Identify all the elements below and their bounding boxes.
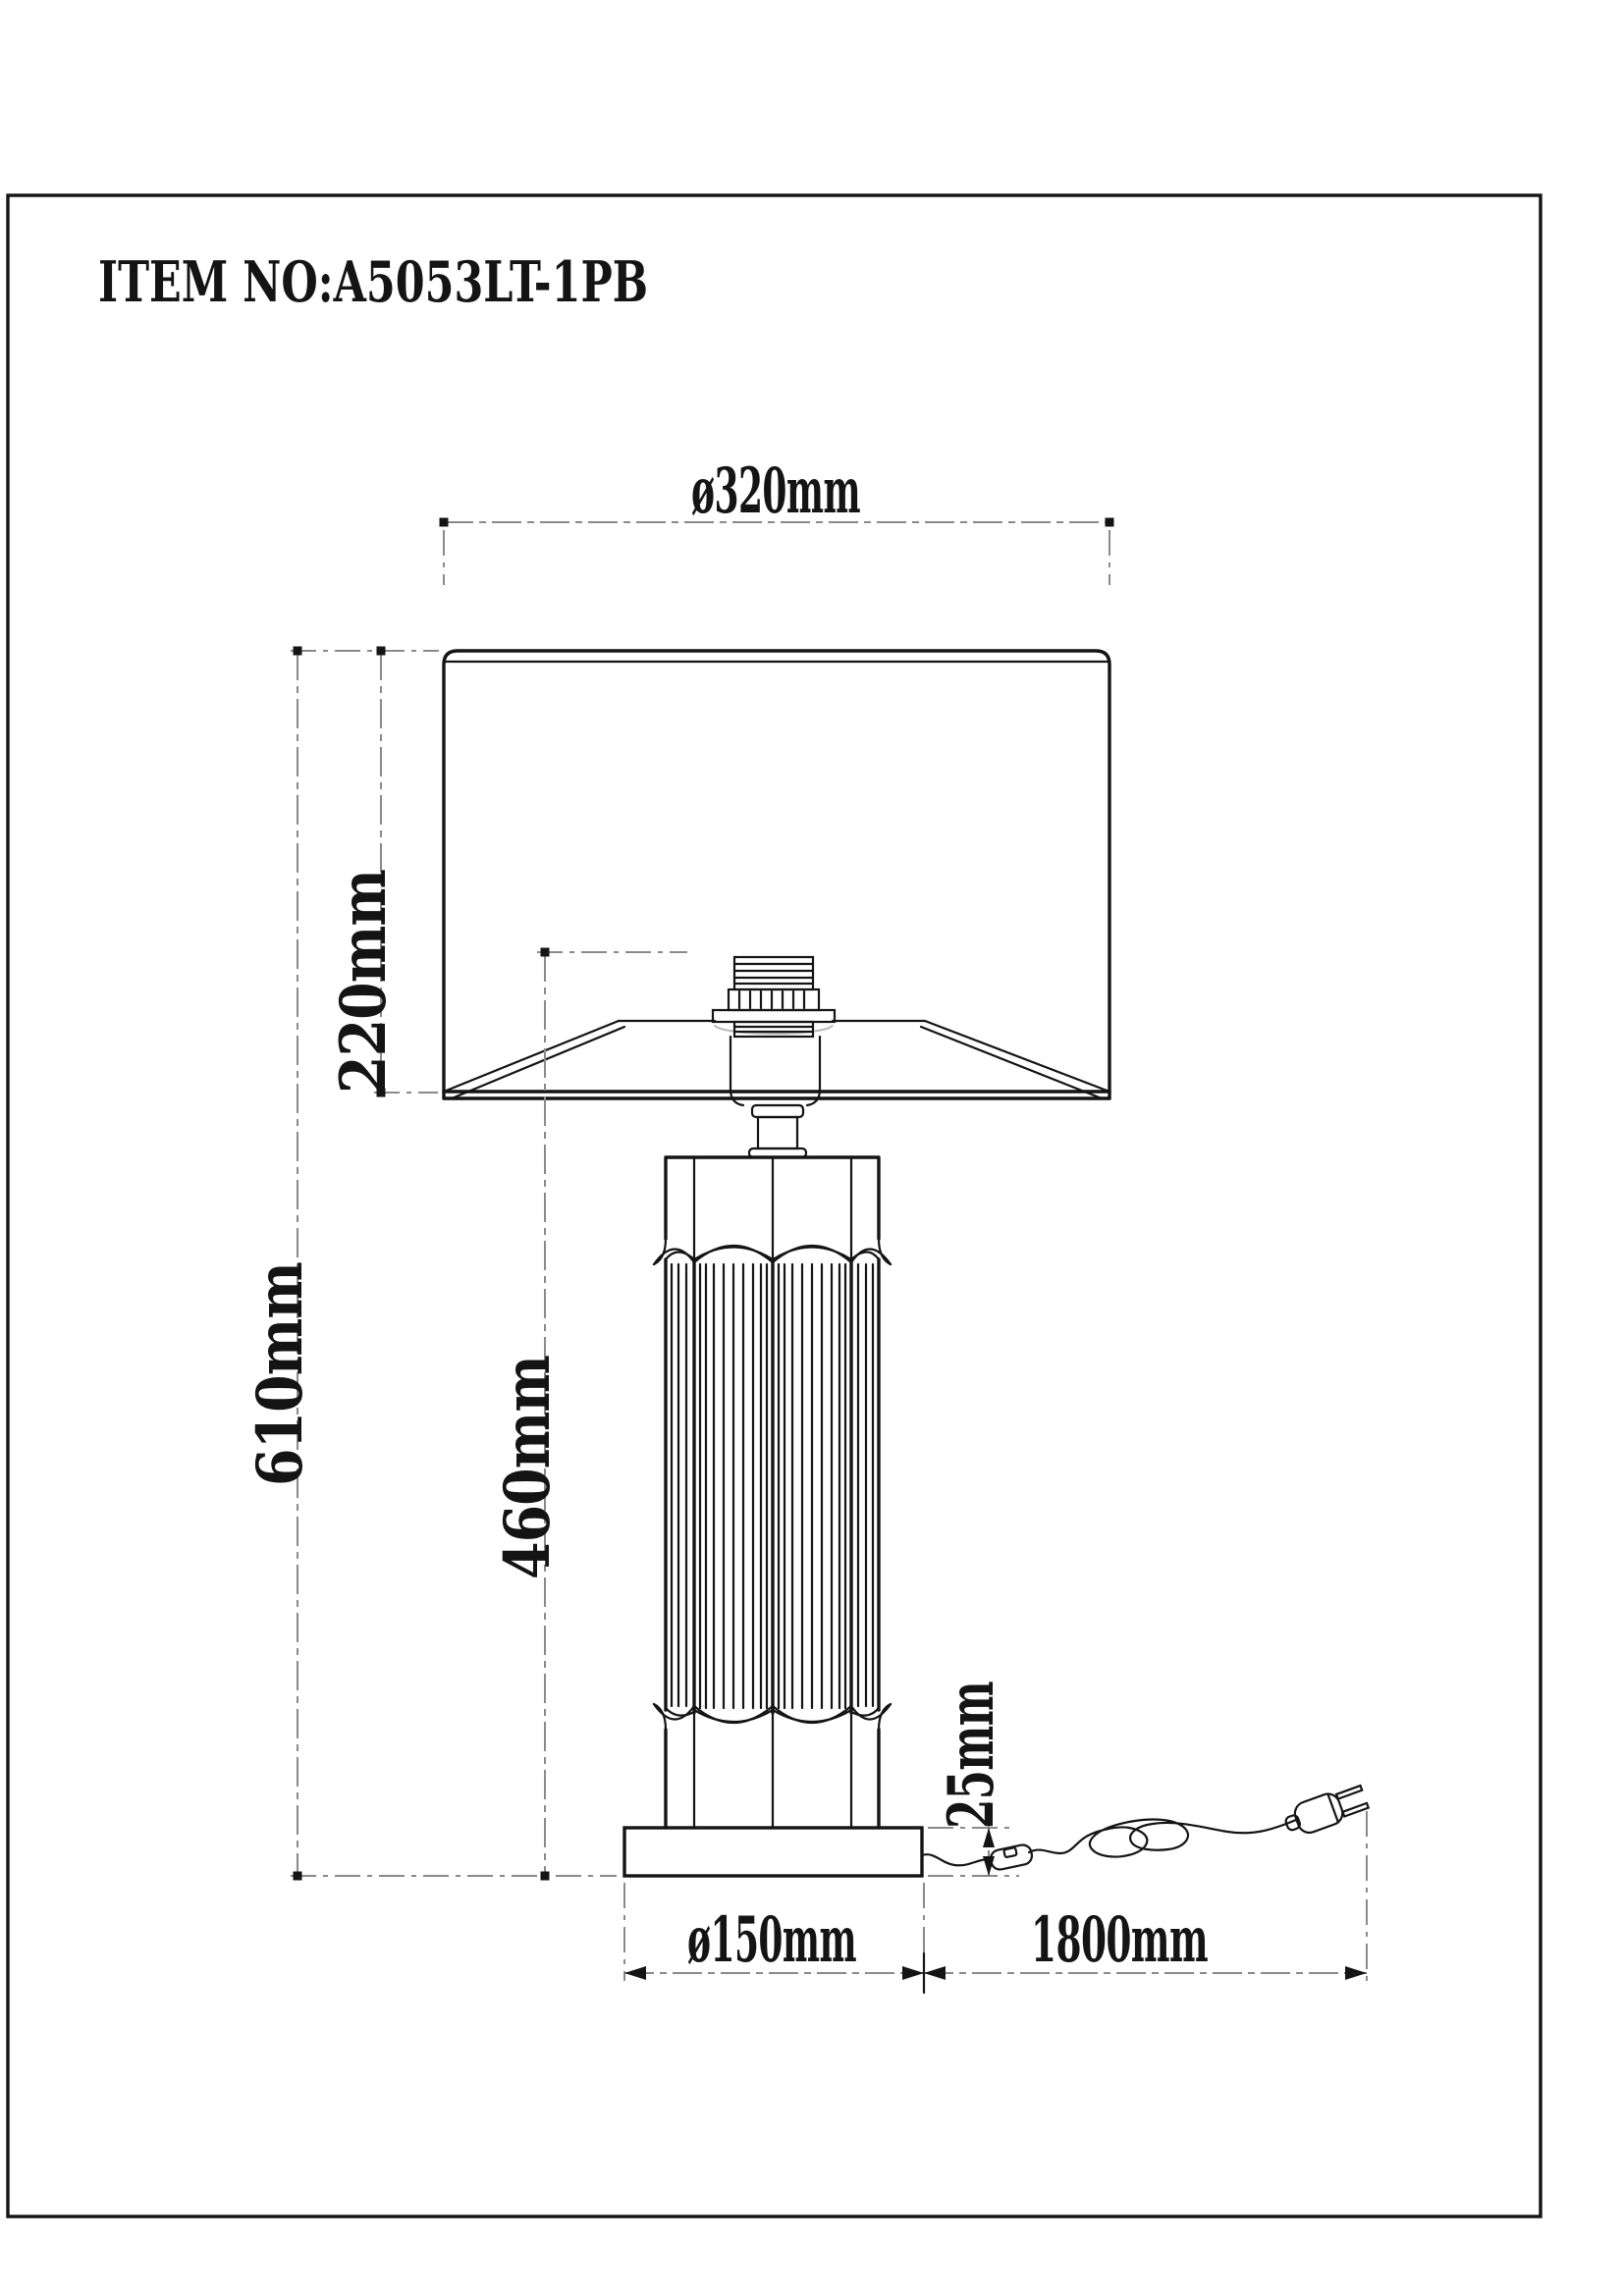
- base-block-lobe-lines: [694, 1708, 851, 1828]
- socket-shaft-outline: [730, 1037, 820, 1105]
- shade-underside-left-diagonals: [444, 1021, 624, 1098]
- stem-shaft: [758, 1117, 797, 1148]
- column-base-block: [654, 1704, 891, 1828]
- plug-pin-top: [1336, 1786, 1362, 1799]
- dim-tick: [440, 518, 449, 527]
- dim-arrow-right: [902, 1966, 924, 1980]
- dim-tick: [294, 647, 302, 656]
- dim-shade-height: 220mm: [291, 647, 439, 1097]
- socket-collar: [729, 989, 819, 1010]
- dim-tick: [541, 948, 550, 957]
- lamp-base: [624, 1828, 922, 1876]
- power-plug: [1281, 1782, 1370, 1840]
- plug-pin-bottom: [1343, 1803, 1369, 1817]
- glass-column: [666, 1248, 879, 1723]
- capital-lobe-lines: [694, 1159, 851, 1258]
- dim-label-shade-height: 220mm: [327, 870, 401, 1094]
- dim-base-diameter: ø150mm: [624, 1883, 924, 1981]
- dim-tick: [294, 1872, 302, 1881]
- item-number: ITEM NO:A5053LT-1PB: [98, 249, 648, 315]
- dim-extensions: [444, 530, 1109, 585]
- dim-arrow-right: [1345, 1966, 1367, 1980]
- dim-tick: [541, 1872, 550, 1881]
- drawing-sheet: ITEM NO:A5053LT-1PB: [0, 0, 1623, 2296]
- dim-tick: [377, 647, 386, 656]
- dim-shade-diameter: ø320mm: [440, 454, 1114, 585]
- lamp-stem: [749, 1105, 806, 1157]
- dim-label-cord-length: 1800mm: [1031, 1903, 1208, 1977]
- socket-collar-slots: [739, 991, 804, 1008]
- lamp-diagram: ITEM NO:A5053LT-1PB: [0, 0, 1623, 2296]
- column-flutes-front-right: [779, 1264, 845, 1708]
- dim-label-base-diameter: ø150mm: [687, 1903, 856, 1977]
- socket-flange: [713, 1010, 835, 1022]
- dim-label-base-height: 25mm: [935, 1682, 1008, 1829]
- socket-lower-rib-lines: [734, 1027, 813, 1032]
- column-edges: [666, 1259, 879, 1713]
- dim-label-total-height: 610mm: [243, 1262, 317, 1486]
- dim-arrow-left: [624, 1966, 646, 1980]
- column-flutes-front-left: [700, 1264, 767, 1708]
- dim-tick: [1106, 518, 1114, 527]
- dim-base-height: 25mm: [928, 1682, 1019, 1876]
- socket-thread-ribs: [734, 964, 813, 984]
- cord-segment-2: [1029, 1819, 1296, 1856]
- dim-body-height: 460mm: [491, 948, 687, 1881]
- switch-button: [1003, 1847, 1016, 1857]
- dim-arrow-left: [924, 1966, 946, 1980]
- cord-switch: [989, 1843, 1033, 1871]
- dim-arrow-up: [983, 1828, 995, 1847]
- dim-label-shade-diameter: ø320mm: [691, 454, 860, 528]
- cord-segment-1: [922, 1854, 992, 1865]
- column-capital: [654, 1157, 891, 1264]
- dim-label-body-height: 460mm: [491, 1356, 565, 1579]
- stem-cap: [752, 1105, 803, 1117]
- shade-underside-right-diagonals: [921, 1021, 1109, 1098]
- dim-total-height: 610mm: [243, 647, 617, 1881]
